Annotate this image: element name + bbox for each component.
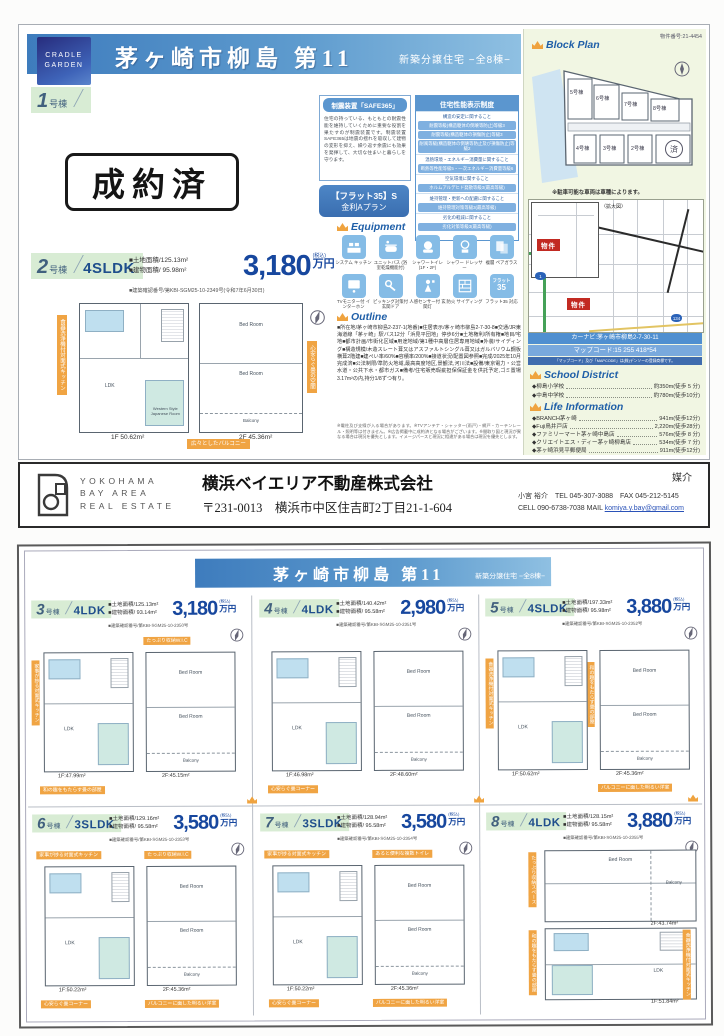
- unit-type: 4LDK: [528, 817, 560, 829]
- equipment-item: ピッキング対策付 玄関ドア: [372, 274, 409, 309]
- life-row: ◆クリエイトエス・ディー茅ヶ崎柳島店534m(徒歩 7 分): [532, 438, 700, 446]
- bathroom-block: [49, 659, 81, 679]
- company-logo-text: YOKOHAMA BAY AREA REAL ESTATE: [80, 475, 175, 512]
- floorplan-1f: LDK: [272, 865, 363, 985]
- kitchen-icon: [342, 235, 366, 259]
- unit-type: 4LDK: [302, 604, 334, 616]
- wall-line: [601, 705, 689, 706]
- 2f-area-caption: 2F:45.15m²: [162, 773, 190, 779]
- unit-number: 7: [265, 815, 273, 830]
- flat35-line2: 金利Aプラン: [319, 202, 409, 213]
- yen-unit: 万円: [219, 605, 236, 614]
- land-area: ■土地面積/129.16m²: [109, 815, 159, 823]
- feature-tag-balcony: 広々としたバルコニー: [187, 439, 250, 449]
- equipment-header-text: Equipment: [351, 221, 405, 233]
- feature-tag: 家事が捗る対面式キッチン: [31, 660, 40, 725]
- equipment-caption: シャワー ドレッサー: [446, 260, 483, 270]
- blockplan-note: ※駐車可能な車両は車種によります。: [552, 188, 643, 196]
- building-area: ■建物面積/ 95.98m²: [562, 607, 612, 615]
- feature-tag: バルコニーに面した明るい洋室: [145, 1000, 219, 1009]
- room-label-japanese-room: Western Style Japanese Room: [145, 407, 186, 417]
- room-label-bedroom: Bed Room: [200, 371, 302, 377]
- pair-glass-icon: [490, 235, 514, 259]
- performance-row: 劣化の軽減に関すること: [416, 213, 518, 222]
- equipment-caption: 防火 サイディング: [446, 299, 483, 304]
- right-column: 物件番号:21-4454 Block Plan: [523, 29, 706, 455]
- flat35-box: 【フラット35】S 金利Aプラン: [319, 185, 409, 217]
- land-area: ■土地面積/128.94m²: [337, 814, 387, 822]
- cell-mail-line: CELL 090‐6738‐7038 MAIL komiya.y.bay@gma…: [518, 505, 684, 512]
- unit2-floorplan-2f: Bed Room Bed Room Balcony: [199, 303, 303, 433]
- school-name: ◆中島中学校: [532, 391, 564, 399]
- sold-circle-mark: 済: [665, 140, 683, 158]
- area-info: ■土地面積/197.33m² ■建物面積/ 95.98m²: [562, 599, 612, 616]
- unit-number: 5: [490, 600, 498, 615]
- unit1-number-badge: 1号棟: [31, 87, 91, 113]
- equipment-caption: シャワートイレ (1F・2F): [409, 260, 446, 270]
- tatami-room-block: [145, 380, 184, 426]
- feature-tag: たっぷり収納スペース: [528, 852, 537, 907]
- price-value: 3,880: [626, 597, 671, 617]
- anti-picking-door-icon: [379, 274, 403, 298]
- floorplan-1f: LDK: [44, 866, 135, 986]
- wall-line: [274, 916, 362, 917]
- housing-performance-box: 住宅性能表示制度 構造の安定に関すること 耐震等級(構造躯体の倒壊等防止)等級3…: [415, 95, 519, 241]
- unit-number: 3: [36, 602, 44, 617]
- building-area: ■建物面積/ 95.58m²: [336, 608, 386, 616]
- feature-tag-kitchen: 食器洗浄機付対面式キッチン: [57, 315, 67, 395]
- blockplan-header-text: Block Plan: [546, 39, 600, 51]
- staircase-block: [110, 658, 129, 688]
- wall-line: [200, 363, 302, 364]
- staircase-block: [339, 871, 358, 901]
- room-label-bedroom: Bed Room: [148, 928, 236, 934]
- performance-row: 構造の安定に関すること: [416, 111, 518, 120]
- tatami-corner-block: [325, 722, 357, 764]
- flat35-line1: 【フラット35】S: [319, 190, 409, 202]
- flat35-icon: フラット35: [490, 274, 514, 298]
- 1f-area-caption: 1F:47.99m²: [58, 773, 86, 779]
- crest-icon: [532, 41, 543, 49]
- staircase-block: [338, 657, 357, 687]
- school-row: ◆柳島小学校約350m(徒歩 5 分): [532, 382, 700, 390]
- poi-distance: 941m(徒歩12分): [659, 414, 700, 422]
- feature-tag: 和の趣をもたらす畳の部屋: [586, 662, 595, 727]
- slash-mark: [58, 601, 73, 614]
- equipment-item: TVモニター付 インターホン: [335, 274, 372, 309]
- company-footer: YOKOHAMA BAY AREA REAL ESTATE 横浜ベイエリア不動産…: [18, 462, 710, 528]
- floorplan-1f: LDK: [271, 651, 362, 771]
- 2f-area-caption: 2F:45.36m²: [616, 771, 644, 777]
- wall-line: [375, 706, 463, 707]
- block-plan-diagram: 5号棟 6号棟 7号棟 8号棟 4号棟 3号棟 2号棟 済: [530, 55, 700, 185]
- cradle-garden-logo: CRADLE GARDEN: [37, 37, 91, 85]
- life-information-header: Life Information: [530, 401, 623, 413]
- price-value: 3,180: [172, 599, 217, 619]
- flyer-page-2: 茅ヶ崎市柳島 第11 新築分譲住宅 −全8棟− 3号棟4LDK ■土地面積/12…: [17, 541, 713, 1028]
- poi-name: ◆Fuji鳥井戸店: [532, 422, 568, 430]
- approval-number: ■建築確認番号/第KBI-SGM25-10-2350号: [108, 623, 246, 630]
- 2f-area-caption: 2F:48.60m²: [390, 772, 418, 778]
- logo-line: REAL ESTATE: [80, 500, 175, 512]
- poi-name: ◆茅ヶ崎浜見平郵便局: [532, 446, 587, 454]
- map-inset-enlarged: 物件: [531, 202, 599, 278]
- performance-row: 断熱等性能等級5・一次エネルギー消費量等級6: [418, 164, 516, 172]
- price-value: 2,980: [400, 598, 445, 618]
- performance-row: ホルムアルデヒド発散等級3(最高等級): [418, 184, 516, 192]
- access-map: 物件 〈拡大図〉 物件 1 134: [528, 199, 704, 333]
- equipment-caption: システム キッチン: [335, 260, 372, 265]
- room-label-bedroom: Bed Room: [601, 712, 689, 718]
- 1f-area-caption: 1F:51.84m²: [651, 999, 679, 1005]
- equipment-caption: 複層 ペアガラス: [483, 260, 520, 265]
- property-number: 物件番号:21-4454: [660, 32, 702, 40]
- building-area: ■建物面積/ 95.58m²: [563, 821, 613, 829]
- feature-tag: たっぷり収納W.I.C: [144, 851, 191, 860]
- slash-mark: [512, 599, 527, 612]
- floorplan-2f: Bed Room Bed Room Balcony: [599, 650, 690, 770]
- poi-distance: 534m(徒歩 7 分): [659, 438, 700, 446]
- performance-row: 空気環境に関すること: [416, 174, 518, 183]
- unit-panel-4: 4号棟4LDK ■土地面積/140.42m² ■建物面積/ 95.58m² 2,…: [259, 595, 478, 804]
- poi-distance: 576m(徒歩 8 分): [659, 430, 700, 438]
- room-label-ldk: LDK: [274, 939, 322, 945]
- room-label-ldk: LDK: [628, 967, 688, 973]
- blockplan-header: Block Plan: [532, 39, 600, 51]
- unit8-number-badge: 8号棟4LDK: [486, 812, 566, 830]
- unit3-number-badge: 3号棟4LDK: [31, 600, 111, 618]
- floorplan-2f: Bed Room Bed Room Balcony: [373, 651, 464, 771]
- compass-icon: [229, 628, 244, 643]
- unit-number: 8: [491, 814, 499, 829]
- 1f-area-caption: 1F:50.62m²: [512, 771, 540, 777]
- outline-body: ■所在地/茅ヶ崎市柳島2-237-1(地番)■住居表示/茅ヶ崎市柳島2-7-30…: [337, 325, 521, 383]
- equipment-caption: 人感センサー付 玄関灯: [409, 299, 446, 309]
- room-label-ldk: LDK: [499, 724, 547, 730]
- wall-line: [46, 917, 134, 918]
- equipment-item: ユニットバス (浴室乾燥機能付): [372, 235, 409, 270]
- outline-header: Outline: [337, 311, 387, 323]
- wall-line: [273, 702, 361, 703]
- room-label-balcony: Balcony: [147, 758, 235, 764]
- area-info: ■土地面積/125.13m² ■建物面積/ 93.14m²: [108, 601, 158, 618]
- wall-line: [376, 920, 464, 921]
- yen-unit: 万円: [448, 818, 465, 827]
- wall-line: [147, 707, 235, 708]
- wall-line: [80, 358, 188, 359]
- floorplan-2f: Bed Room Balcony: [544, 850, 696, 923]
- feature-tag: 和の趣をもたらす畳の部屋: [529, 930, 538, 995]
- outline-header-text: Outline: [351, 311, 387, 323]
- room-label-balcony: Balcony: [148, 972, 236, 978]
- price: 2,980 (税込)万円: [400, 598, 464, 618]
- equipment-header: Equipment: [337, 221, 405, 233]
- block-plan-shapes: [530, 55, 700, 185]
- balcony-strip: Balcony: [200, 413, 302, 432]
- performance-row: 維持管理・更新への配慮に関すること: [416, 193, 518, 202]
- unit6-number-badge: 6号棟3SLDK: [32, 814, 121, 832]
- crest-icon: [337, 313, 348, 321]
- dotted-leader: [566, 388, 651, 389]
- 1f-area-caption: 1F:46.98m²: [286, 772, 314, 778]
- feature-tag-tatami: 心安らぐ畳の空間: [307, 341, 317, 393]
- mediation-label: 媒介: [672, 469, 692, 484]
- unit1-number: 1: [37, 91, 48, 111]
- company-logo-icon: [32, 472, 74, 518]
- approval-number: ■建築確認番号/第KBI-SGM25-10-2355号: [563, 835, 701, 842]
- map-road: [663, 200, 664, 332]
- slash-mark: [59, 815, 74, 828]
- dotted-leader: [570, 428, 653, 429]
- tv-intercom-icon: [342, 274, 366, 298]
- dotted-leader: [589, 452, 658, 453]
- wall-line: [140, 304, 141, 358]
- room-label-balcony: Balcony: [651, 880, 696, 886]
- compass-icon: [309, 309, 326, 326]
- yen-unit: 万円: [313, 259, 335, 270]
- unit2-number: 2: [37, 257, 48, 277]
- page2-subtitle: 新築分譲住宅 −全8棟−: [475, 571, 545, 581]
- crest-icon: [530, 371, 541, 379]
- price: 3,580 (税込)万円: [173, 813, 237, 833]
- poi-name: ◆BRANCH茅ヶ崎: [532, 414, 577, 422]
- 1f-area-caption: 1F:50.22m²: [59, 987, 87, 993]
- feature-tag: あると便利な複数トイレ: [372, 850, 432, 859]
- unit-number: 4: [264, 601, 272, 616]
- equipment-caption: ピッキング対策付 玄関ドア: [372, 299, 409, 309]
- equipment-item: フラット35 フラット35 対応: [483, 274, 520, 309]
- map-road: [687, 200, 688, 332]
- life-information-header-text: Life Information: [544, 401, 623, 413]
- floorplan-1f: LDK: [497, 650, 588, 770]
- unit2-area-info: ■土地面積/125.13m² ■建物面積/ 95.98m²: [129, 256, 241, 276]
- area-info: ■土地面積/129.16m² ■建物面積/ 95.58m²: [109, 815, 159, 832]
- unit-number: 6: [37, 816, 45, 831]
- feature-tag: 心安らぐ畳コーナー: [41, 1000, 91, 1009]
- staircase-block: [564, 656, 583, 686]
- area-info: ■土地面積/128.94m² ■建物面積/ 95.58m²: [337, 814, 387, 831]
- unit-panel-3: 3号棟4LDK ■土地面積/125.13m² ■建物面積/ 93.14m² 3,…: [31, 596, 250, 805]
- sold-stamp: 成約済: [65, 153, 239, 211]
- room-label-bedroom: Bed Room: [376, 927, 464, 933]
- room-label-ldk: LDK: [45, 726, 93, 732]
- yen-unit: 万円: [220, 819, 237, 828]
- staircase-block: [111, 872, 130, 902]
- performance-row: 劣化対策等級3(最高等級): [418, 223, 516, 231]
- feature-tag: 家事が捗る対面式キッチン: [264, 850, 329, 859]
- motion-sensor-light-icon: [416, 274, 440, 298]
- unit-type: 4LDK: [74, 605, 106, 617]
- price-value: 3,580: [401, 812, 446, 832]
- 1f-area-caption: 1F:50.22m²: [287, 986, 315, 992]
- dotted-leader: [579, 420, 658, 421]
- cell-number: CELL 090‐6738‐7038 MAIL: [518, 505, 605, 512]
- feature-tag: 食器洗浄機付対面式キッチン: [485, 658, 494, 728]
- balcony-strip: Balcony: [376, 966, 464, 984]
- mapcode-note: 「マップコード」及び「MAPCODE」は(株)デンソーの登録商標です。: [528, 357, 702, 365]
- tatami-corner-block: [326, 936, 358, 978]
- compass-icon: [458, 841, 473, 856]
- email-address: komiya.y.bay@gmail.com: [605, 505, 684, 512]
- equipment-caption: フラット35 対応: [483, 299, 520, 304]
- life-row: ◆BRANCH茅ヶ崎941m(徒歩12分): [532, 414, 700, 422]
- performance-header: 住宅性能表示制度: [416, 96, 518, 111]
- bathroom-block: [85, 310, 124, 331]
- unit5-number-badge: 5号棟4SLDK: [485, 598, 574, 616]
- bathroom-block: [50, 873, 82, 893]
- map-road: [538, 215, 594, 216]
- unit4-number-badge: 4号棟4LDK: [259, 599, 339, 617]
- inset-label: 〈拡大図〉: [601, 203, 626, 210]
- 2f-area-caption: 2F:45.36m²: [391, 986, 419, 992]
- room-label-bedroom: Bed Room: [600, 667, 688, 673]
- unit-panel-7: 7号棟3SLDK ■土地面積/128.94m² ■建物面積/ 95.58m² 3…: [260, 809, 479, 1018]
- bathroom-block: [553, 933, 588, 952]
- poi-name: ◆ファミリーマート茅ヶ崎中島店: [532, 430, 615, 438]
- route-1-shield: 1: [535, 272, 546, 280]
- floorplan-2f: Bed Room Bed Room Balcony: [374, 865, 465, 985]
- feature-tag: 食器洗浄機付対面式キッチン: [683, 930, 692, 1000]
- feature-tag: 心安らぐ畳コーナー: [269, 999, 319, 1008]
- balcony-strip: Balcony: [148, 967, 236, 985]
- poi-distance: 911m(徒歩12分): [660, 446, 700, 454]
- map-road: [613, 200, 614, 332]
- unit1-suffix: 号棟: [49, 97, 67, 110]
- school-distance: 約780m(徒歩10分): [654, 391, 700, 399]
- slash-mark: [513, 813, 528, 826]
- room-label-balcony: Balcony: [375, 757, 463, 763]
- slash-mark: [286, 600, 301, 613]
- unit-panel-6: 6号棟3SLDK ■土地面積/129.16m² ■建物面積/ 95.58m² 3…: [32, 810, 251, 1019]
- price-value: 3,580: [173, 813, 218, 833]
- lot-label-5: 5号棟: [570, 89, 583, 96]
- feature-tag: 心安らぐ畳コーナー: [268, 785, 318, 794]
- feature-tag: たっぷり収納W.I.C: [143, 637, 190, 646]
- unit2-floorplan-1f: LDK Western Style Japanese Room: [79, 303, 189, 433]
- property-marker: 物件: [537, 239, 560, 251]
- wall-line: [148, 921, 236, 922]
- land-area: ■土地面積/125.13m²: [108, 601, 158, 609]
- area-info: ■土地面積/128.15m² ■建物面積/ 95.58m²: [563, 813, 613, 830]
- unit2-1f-area-caption: 1F 50.62m²: [111, 434, 144, 441]
- performance-row: 耐震等級(構造躯体の倒壊等防止)等級3: [418, 121, 516, 129]
- shower-dresser-icon: [453, 235, 477, 259]
- shower-toilet-icon: [416, 235, 440, 259]
- feature-tag: バルコニーに面した明るい洋室: [373, 999, 447, 1008]
- approval-number: ■建築確認番号/第KBI-SGM25-10-2352号: [562, 621, 700, 628]
- lot-label-6: 6号棟: [596, 95, 609, 102]
- room-label-bedroom: Bed Room: [375, 882, 463, 888]
- balcony-strip: Balcony: [375, 752, 463, 770]
- equipment-caption: TVモニター付 インターホン: [335, 299, 372, 309]
- price: 3,880 (税込)万円: [626, 597, 690, 617]
- school-row: ◆中島中学校約780m(徒歩10分): [532, 391, 700, 399]
- compass-icon: [457, 627, 472, 642]
- mapcode-bar: マップコード:15 255 418*54: [528, 345, 702, 356]
- agent-contact-line: 小宮 裕介 TEL 045-307-3088 FAX 045-212-5145: [518, 491, 679, 501]
- equipment-caption: ユニットバス (浴室乾燥機能付): [372, 260, 409, 270]
- land-area: ■土地面積/128.15m²: [563, 813, 613, 821]
- performance-row: 耐風等級(構造躯体の倒壊等防止及び損傷防止)等級2: [418, 140, 516, 153]
- school-distance: 約350m(徒歩 5 分): [654, 382, 700, 390]
- slash-mark: [64, 89, 84, 107]
- room-label-balcony: Balcony: [601, 756, 689, 762]
- crest-icon: [337, 223, 348, 231]
- safe365-box: 制震装置「SAFE365」 住宅の持っている、もともとの耐震性能を維持していくた…: [319, 95, 411, 181]
- slash-mark: [287, 814, 302, 827]
- logo-line: BAY AREA: [80, 487, 175, 499]
- room-label-balcony: Balcony: [200, 418, 302, 423]
- unit-bath-icon: [379, 235, 403, 259]
- lot-label-7: 7号棟: [624, 101, 637, 108]
- page1-header-bar: CRADLE GARDEN 茅ヶ崎市柳島 第11 新築分譲住宅 −全8棟−: [27, 34, 521, 74]
- room-label-ldk: LDK: [80, 383, 139, 389]
- life-row: ◆茅ヶ崎浜見平郵便局911m(徒歩12分): [532, 446, 700, 454]
- yen-unit: 万円: [674, 817, 691, 826]
- price-value: 3,880: [627, 811, 672, 831]
- map-road: [576, 203, 577, 277]
- carnavi-bar: カーナビ:茅ヶ崎市柳島2-7-30-11: [528, 333, 702, 344]
- unit2-approval-number: ■建築確認番号/第KBI-SGM25-10-2349号(令和7年6月30日): [129, 287, 349, 294]
- safe365-body: 住宅の持っている、もともとの耐震性能を維持していくために重要な役割を果たすのが制…: [320, 114, 410, 166]
- floorplan-1f: LDK: [545, 928, 697, 1001]
- room-label-ldk: LDK: [46, 940, 94, 946]
- page2-title: 茅ヶ崎市柳島 第11: [273, 561, 444, 586]
- logo-line: YOKOHAMA: [80, 475, 175, 487]
- equipment-item: システム キッチン: [335, 235, 372, 270]
- bathroom-block: [277, 658, 309, 678]
- building-area: ■建物面積/ 95.58m²: [109, 823, 159, 831]
- unit-panel-5: 5号棟4SLDK ■土地面積/197.33m² ■建物面積/ 95.98m² 3…: [485, 594, 704, 803]
- room-label-balcony: Balcony: [376, 971, 464, 977]
- dotted-leader: [633, 444, 657, 445]
- poi-distance: 2,220m(徒歩28分): [655, 422, 700, 430]
- price: 3,580 (税込)万円: [401, 812, 465, 832]
- price: 3,880 (税込)万円: [627, 811, 691, 831]
- life-row: ◆ファミリーマート茅ヶ崎中島店576m(徒歩 8 分): [532, 430, 700, 438]
- unit2-number-badge: 2号棟4SLDK: [31, 253, 143, 279]
- bathroom-block: [278, 872, 310, 892]
- bathroom-block: [503, 657, 535, 677]
- equipment-item: 防火 サイディング: [446, 274, 483, 309]
- staircase-block: [161, 309, 184, 342]
- price: 3,180 (税込)万円: [172, 599, 236, 619]
- yen-unit: 万円: [673, 603, 690, 612]
- page-title: 茅ヶ崎市柳島 第11: [115, 39, 353, 73]
- dotted-leader: [566, 397, 651, 398]
- tatami-room-block: [551, 721, 583, 763]
- outline-fine-print: ※電柱及び支線が入る場合があります。※TVアンテナ・シャッター(雨戸)・網戸・カ…: [337, 423, 521, 440]
- map-road: [529, 292, 703, 293]
- performance-row: 耐震等級(構造躯体の損傷防止)等級3: [418, 131, 516, 139]
- brand-line2: GARDEN: [37, 61, 91, 71]
- room-label-bedroom: Bed Room: [200, 322, 302, 328]
- room-label-bedroom: Bed Room: [375, 713, 463, 719]
- 2f-area-caption: 2F:45.36m²: [163, 987, 191, 993]
- brand-line1: CRADLE: [37, 51, 91, 61]
- balcony-strip: Balcony: [601, 751, 689, 769]
- area-info: ■土地面積/140.42m² ■建物面積/ 95.58m²: [336, 600, 386, 617]
- unit2-price-value: 3,180: [243, 252, 311, 281]
- wall-line: [45, 703, 133, 704]
- room-label-bedroom: Bed Room: [147, 714, 235, 720]
- school-district-header-text: School District: [544, 369, 618, 381]
- scanned-flyer: CRADLE GARDEN 茅ヶ崎市柳島 第11 新築分譲住宅 −全8棟− 1号…: [0, 0, 724, 1036]
- page-subtitle: 新築分譲住宅 −全8棟−: [399, 51, 511, 66]
- performance-row: 維持管理対策等級3(最高等級): [418, 203, 516, 211]
- tatami-corner-block: [98, 937, 130, 979]
- approval-number: ■建築確認番号/第KBI-SGM25-10-2354号: [337, 836, 475, 843]
